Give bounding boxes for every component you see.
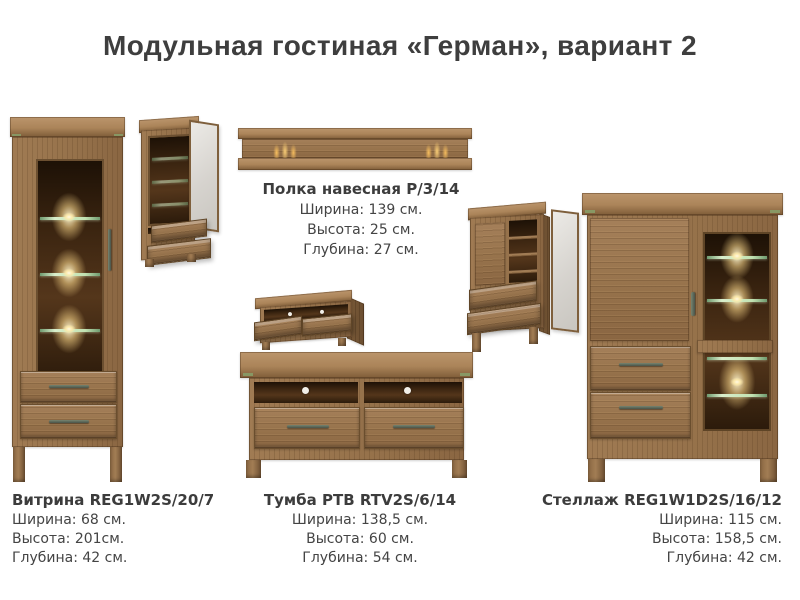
glass-shelf xyxy=(707,357,767,360)
cable-hole xyxy=(404,387,411,394)
spec-depth: Глубина: 42 см. xyxy=(12,549,214,568)
cable-hole xyxy=(302,387,309,394)
product-name: Тумба РТВ RTV2S/6/14 xyxy=(245,491,475,510)
vitrine-top-panel xyxy=(10,117,125,137)
shelf-spec: Полка навесная Р/3/14 Ширина: 139 см. Вы… xyxy=(236,179,486,260)
leg xyxy=(262,342,270,350)
product-name: Витрина REG1W2S/20/7 xyxy=(12,491,214,510)
led-spot xyxy=(60,267,78,279)
tv-top-panel xyxy=(240,352,473,378)
vitrine-glass-door xyxy=(36,159,104,383)
leg xyxy=(452,460,467,478)
glass-shelf xyxy=(707,394,767,397)
led-spot xyxy=(60,211,78,223)
spec-height: Высота: 60 см. xyxy=(245,530,475,549)
shelving-top-panel xyxy=(582,193,783,215)
drawer xyxy=(20,404,117,439)
open-shelves xyxy=(509,219,537,282)
spec-width: Ширина: 139 см. xyxy=(236,200,486,220)
wood-door xyxy=(590,218,689,341)
spec-height: Высота: 25 см. xyxy=(236,220,486,240)
green-accent xyxy=(460,373,470,376)
shelving-glass-door xyxy=(703,232,771,431)
door-handle xyxy=(691,292,695,316)
spec-height: Высота: 158,5 см. xyxy=(522,530,782,549)
shelf-board xyxy=(509,269,537,273)
leg xyxy=(588,459,605,482)
spec-depth: Глубина: 54 см. xyxy=(245,549,475,568)
vitrine-spec: Витрина REG1W2S/20/7 Ширина: 68 см. Высо… xyxy=(12,491,214,568)
tv-stand-open-photo xyxy=(252,290,372,352)
green-accent xyxy=(12,134,21,136)
drawer-handle xyxy=(619,363,663,366)
leg xyxy=(529,327,538,344)
wood-door xyxy=(475,222,505,286)
shelf-light-glow xyxy=(422,139,452,158)
open-glass-door xyxy=(551,209,579,332)
drawer-handle xyxy=(393,425,435,428)
leg xyxy=(338,338,346,346)
leg xyxy=(13,447,25,482)
drawer-handle xyxy=(287,425,329,428)
tv-stand-spec: Тумба РТВ RTV2S/6/14 Ширина: 138,5 см. В… xyxy=(245,491,475,568)
drawer-handle xyxy=(49,420,89,423)
leg xyxy=(145,259,154,267)
led-spot xyxy=(728,293,746,305)
shelf-bottom-ledge xyxy=(238,158,472,170)
cable-hole xyxy=(320,310,324,314)
product-name: Полка навесная Р/3/14 xyxy=(236,179,486,199)
spec-width: Ширина: 138,5 см. xyxy=(245,511,475,530)
leg xyxy=(110,447,122,482)
tv-niche xyxy=(364,382,462,403)
shelf-light-glow xyxy=(270,139,300,158)
spec-width: Ширина: 115 см. xyxy=(522,511,782,530)
vitrine-open-photo xyxy=(139,116,219,267)
shelf-board xyxy=(509,235,537,239)
tv-stand-photo xyxy=(240,352,473,478)
shelving-photo xyxy=(582,193,783,482)
shelving-open-photo xyxy=(467,201,579,357)
vitrine-open-interior xyxy=(148,134,192,226)
glass-shelf xyxy=(152,156,188,161)
led-spot xyxy=(60,323,78,335)
shelf-board xyxy=(509,252,537,256)
catalog-page: Модульная гостиная «Герман», вариант 2 xyxy=(0,0,800,600)
open-glass-door xyxy=(189,120,219,233)
glass-door-rail xyxy=(697,340,773,353)
wall-shelf-photo xyxy=(238,128,472,170)
led-spot xyxy=(728,376,746,388)
drawer xyxy=(254,407,360,449)
drawer xyxy=(590,392,691,439)
drawer xyxy=(590,346,691,391)
led-spot xyxy=(728,250,746,262)
page-title: Модульная гостиная «Герман», вариант 2 xyxy=(0,30,800,62)
green-accent xyxy=(114,134,123,136)
leg xyxy=(472,333,481,352)
spec-width: Ширина: 68 см. xyxy=(12,511,214,530)
vitrine-front-photo xyxy=(10,117,125,482)
cable-hole xyxy=(288,312,292,316)
tv-niche xyxy=(254,382,358,403)
shelving-spec: Стеллаж REG1W1D2S/16/12 Ширина: 115 см. … xyxy=(522,491,782,568)
spec-height: Высота: 201см. xyxy=(12,530,214,549)
glass-shelf xyxy=(152,202,188,207)
door-handle xyxy=(108,229,111,271)
product-name: Стеллаж REG1W1D2S/16/12 xyxy=(522,491,782,510)
drawer xyxy=(364,407,464,449)
spec-depth: Глубина: 42 см. xyxy=(522,549,782,568)
shelf-top-board xyxy=(238,128,472,139)
leg xyxy=(246,460,261,478)
green-accent xyxy=(585,210,595,213)
drawer xyxy=(20,371,117,403)
glass-shelf xyxy=(152,179,188,184)
drawer-handle xyxy=(619,406,663,409)
spec-depth: Глубина: 27 см. xyxy=(236,240,486,260)
leg xyxy=(760,459,777,482)
green-accent xyxy=(770,210,780,213)
green-accent xyxy=(243,373,253,376)
leg xyxy=(187,254,196,262)
drawer-handle xyxy=(49,385,89,388)
